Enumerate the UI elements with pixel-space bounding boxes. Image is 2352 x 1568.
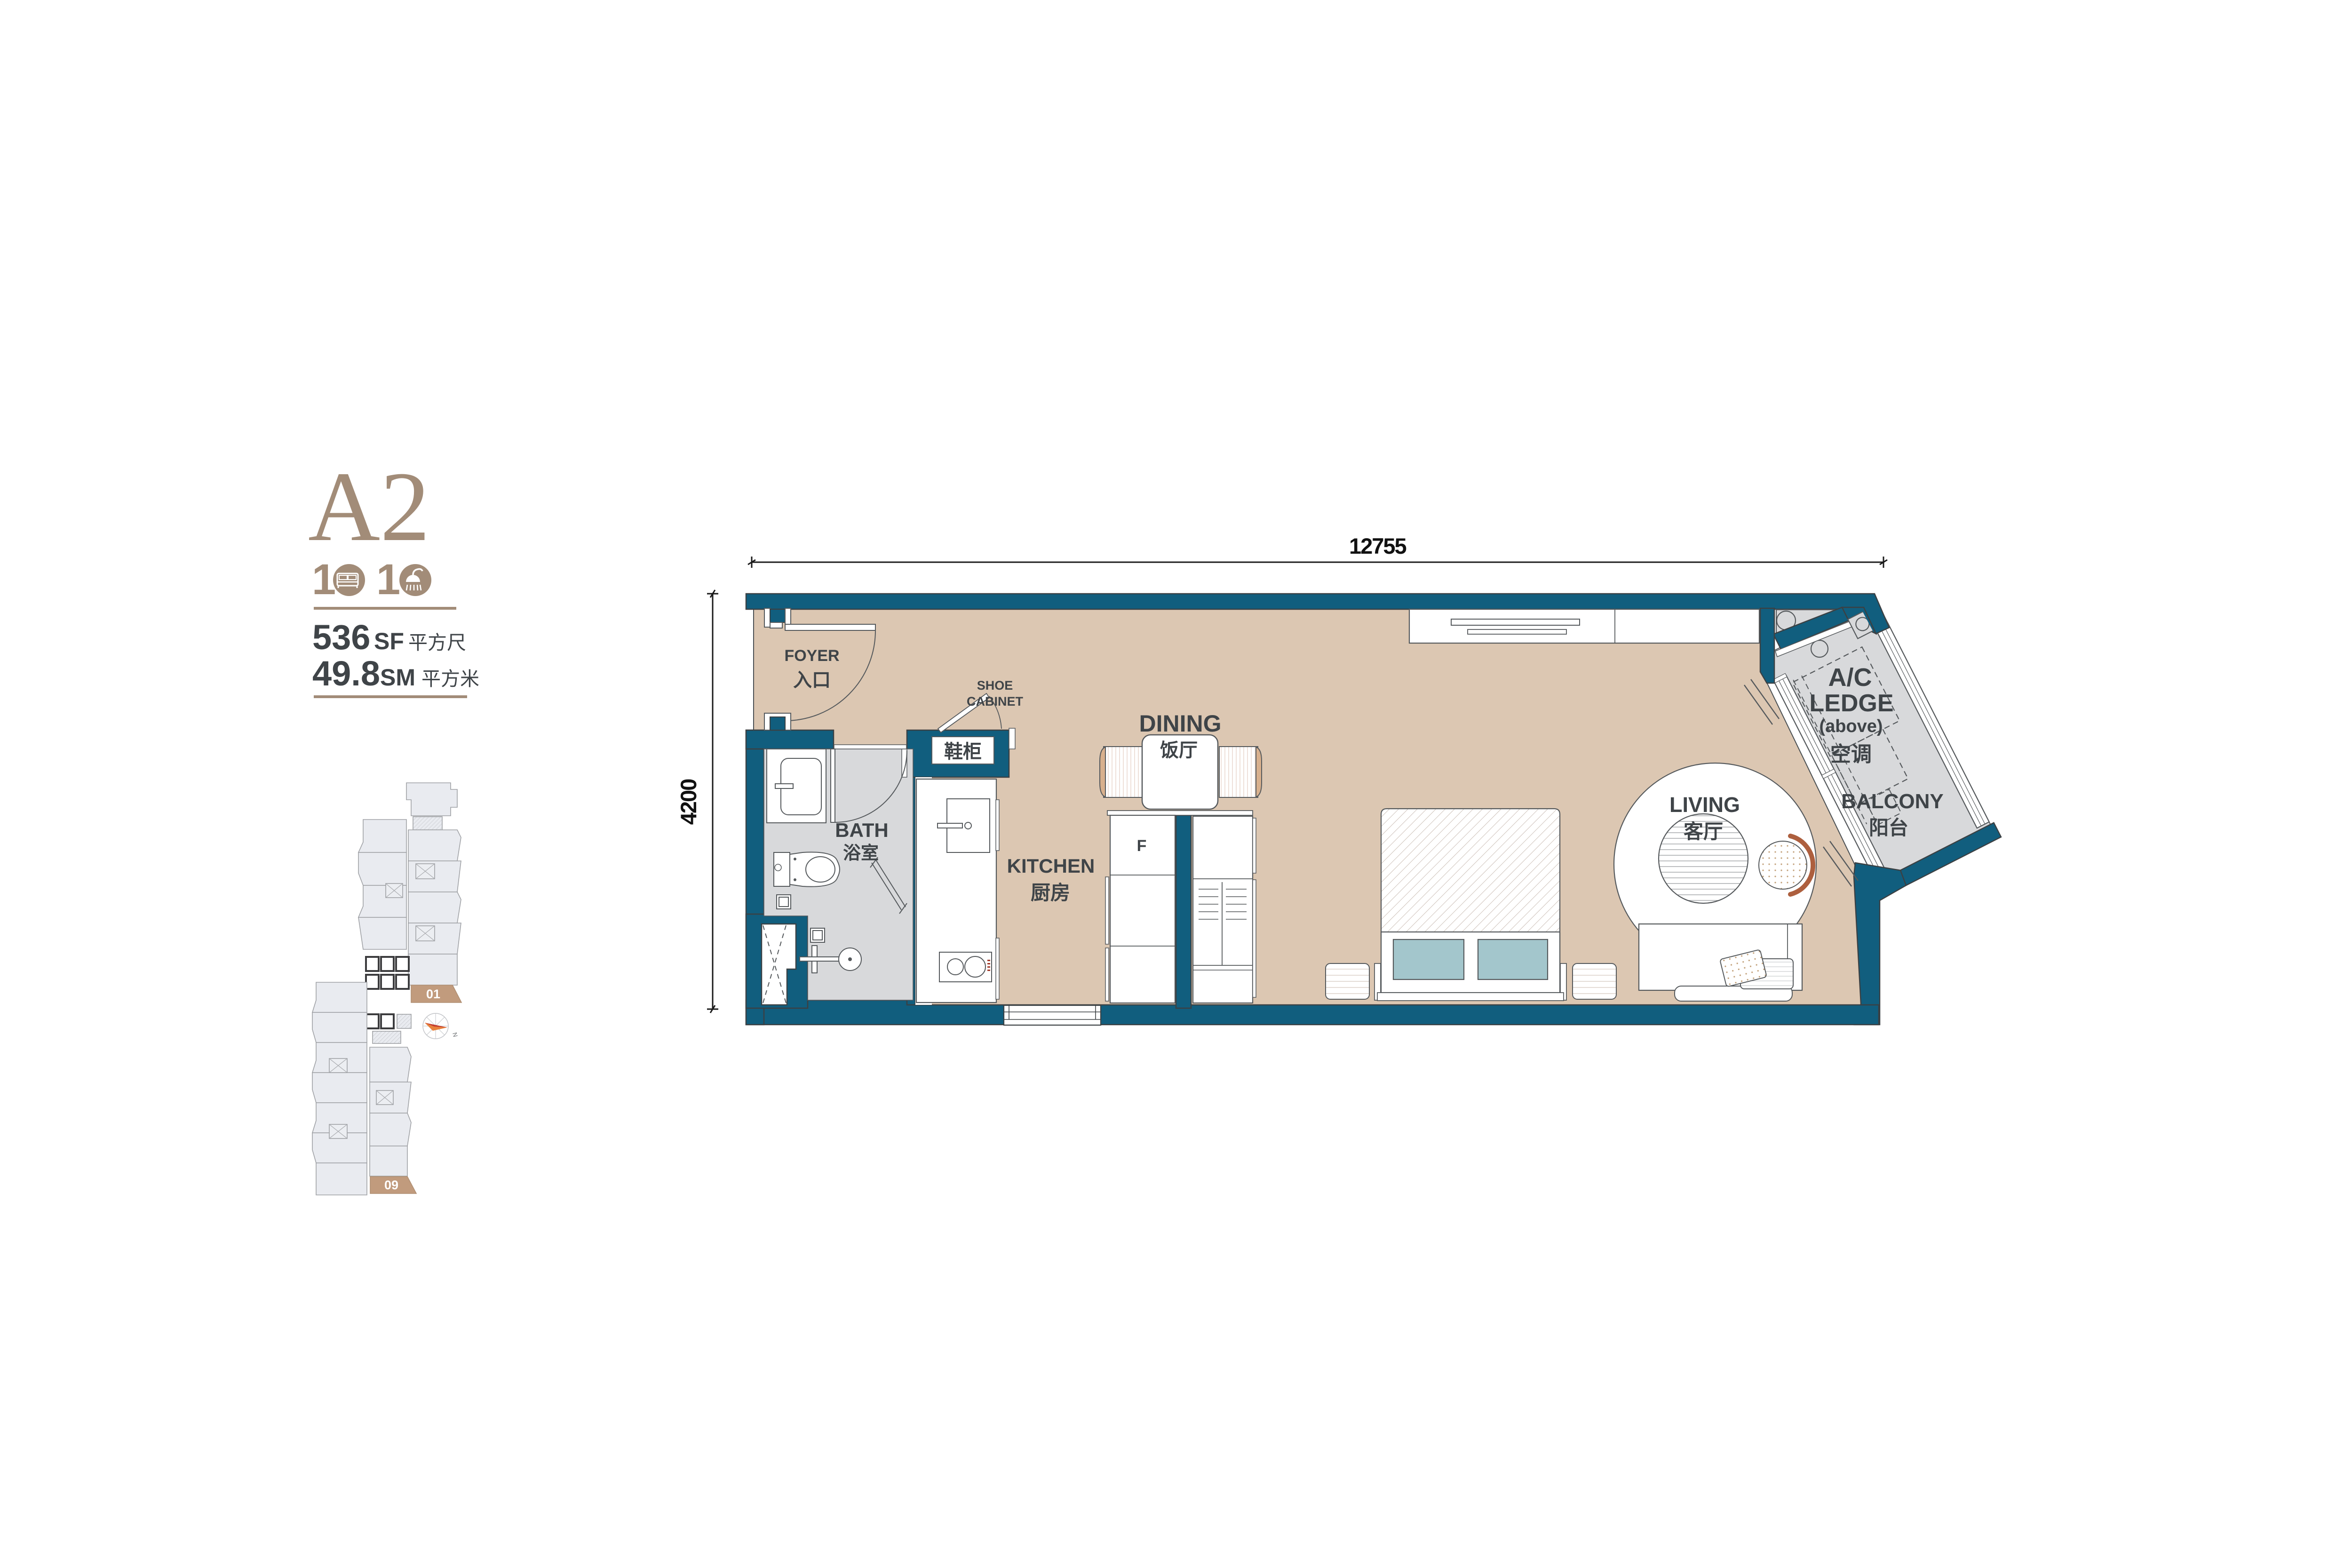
svg-text:LIVING: LIVING — [1669, 793, 1740, 817]
svg-text:饭厅: 饭厅 — [1160, 740, 1198, 761]
svg-text:49.8: 49.8 — [312, 654, 380, 693]
svg-text:浴室: 浴室 — [843, 843, 879, 863]
svg-text:BALCONY: BALCONY — [1841, 790, 1944, 813]
svg-text:入口: 入口 — [793, 670, 831, 691]
svg-text:KITCHEN: KITCHEN — [1007, 855, 1095, 877]
svg-text:A2: A2 — [308, 451, 430, 562]
svg-text:09: 09 — [384, 1178, 398, 1192]
svg-text:厨房: 厨房 — [1031, 882, 1070, 904]
svg-text:A/C: A/C — [1828, 663, 1872, 692]
svg-text:CABINET: CABINET — [967, 694, 1024, 708]
svg-text:FOYER: FOYER — [784, 647, 839, 665]
svg-text:1: 1 — [312, 556, 336, 604]
svg-text:F: F — [1137, 837, 1147, 855]
svg-text:SF: SF — [374, 628, 404, 654]
svg-text:12755: 12755 — [1349, 533, 1406, 558]
svg-text:SHOE: SHOE — [977, 678, 1013, 692]
svg-text:1: 1 — [376, 556, 400, 604]
svg-text:DINING: DINING — [1139, 710, 1222, 737]
svg-text:阳台: 阳台 — [1869, 817, 1908, 839]
svg-text:鞋柜: 鞋柜 — [944, 741, 982, 762]
svg-text:平方尺: 平方尺 — [408, 632, 466, 653]
svg-text:空调: 空调 — [1830, 743, 1872, 766]
svg-text:(above): (above) — [1819, 716, 1883, 736]
svg-text:SM: SM — [380, 664, 415, 691]
svg-text:平方米: 平方米 — [421, 668, 479, 690]
svg-text:4200: 4200 — [676, 779, 701, 825]
svg-text:01: 01 — [426, 987, 440, 1001]
svg-text:536: 536 — [312, 618, 370, 657]
svg-text:BATH: BATH — [835, 819, 889, 841]
svg-text:客厅: 客厅 — [1684, 820, 1723, 843]
svg-text:LEDGE: LEDGE — [1809, 690, 1893, 717]
